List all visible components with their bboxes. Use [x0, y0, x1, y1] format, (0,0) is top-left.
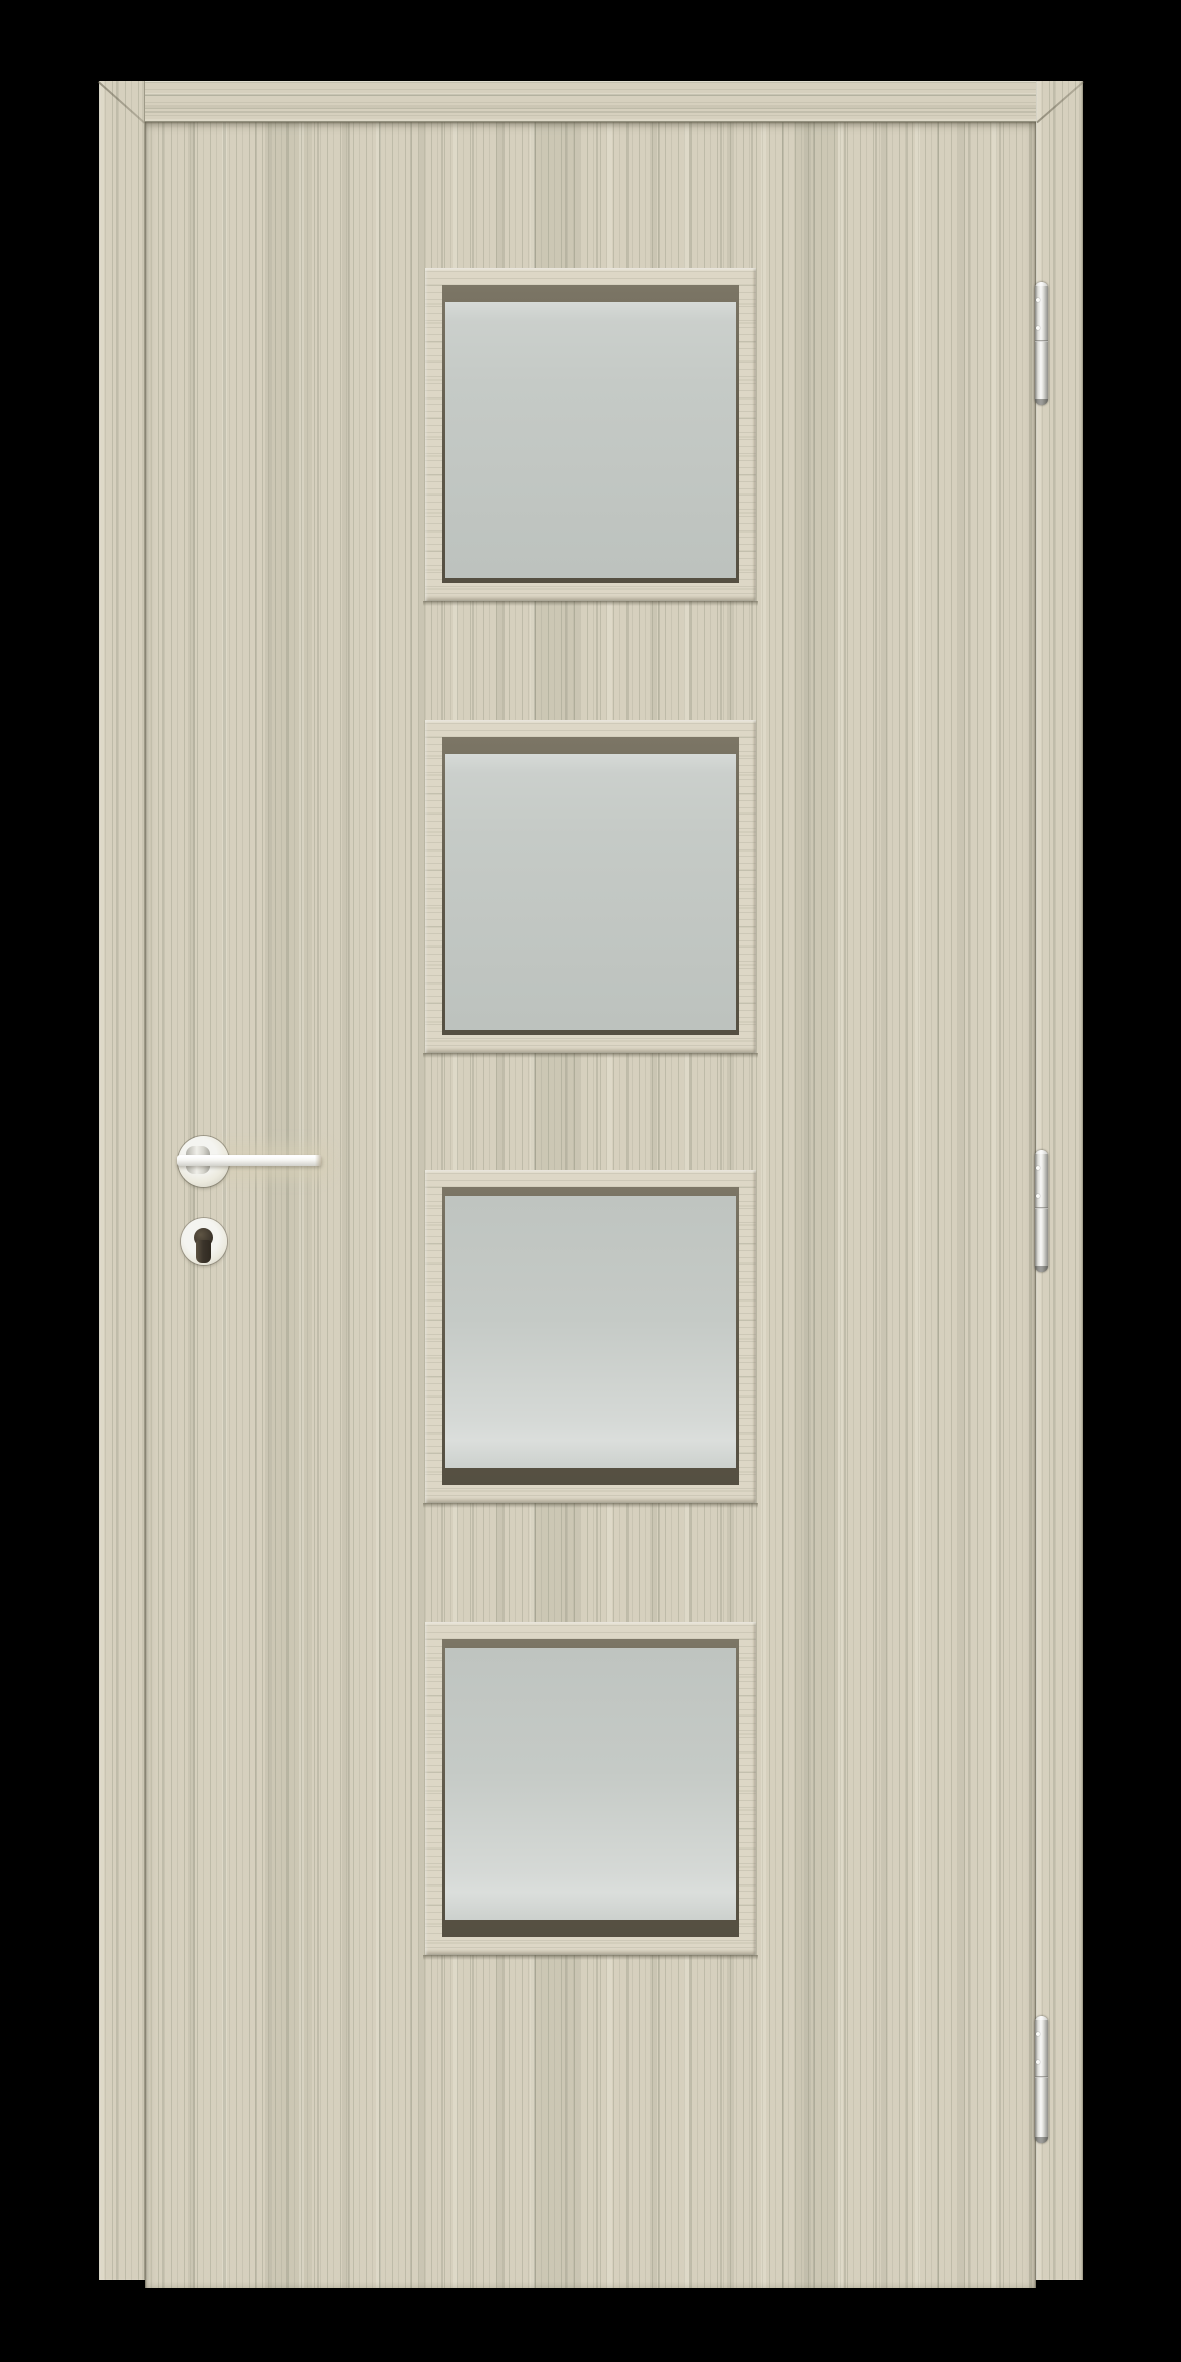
hinge-seam: [1035, 2076, 1048, 2078]
panel-rebate: [442, 1187, 739, 1485]
hinge-pin-icon: [1036, 1166, 1040, 1170]
glass-pane: [445, 754, 736, 1030]
hinge-top: [1035, 282, 1048, 405]
door-leaf: [145, 122, 1036, 2288]
hinge-pin-icon: [1036, 1194, 1040, 1198]
frame-reveal-left: [145, 122, 147, 2288]
door-frame-jamb-left: [99, 81, 145, 2280]
glazing-panel-2: [425, 720, 756, 1053]
hinge-middle: [1035, 1150, 1048, 1272]
door-assembly: [0, 0, 1181, 2362]
glass-pane: [445, 1196, 736, 1468]
glazing-panel-3: [425, 1170, 756, 1503]
hinge-pin-icon: [1036, 2060, 1040, 2064]
lever-handle: [177, 1155, 322, 1166]
keyhole-stem: [196, 1240, 211, 1263]
panel-rebate: [442, 737, 739, 1035]
door-frame-header: [99, 81, 1083, 122]
frame-reveal-top: [145, 122, 1036, 124]
hinge-seam: [1035, 1207, 1048, 1209]
panel-rebate: [442, 1639, 739, 1937]
panel-rebate: [442, 285, 739, 583]
glazing-panel-1: [425, 268, 756, 601]
hinge-pin-icon: [1036, 298, 1040, 302]
photo-background: [0, 0, 1181, 2362]
glazing-panel-4: [425, 1622, 756, 1955]
glass-pane: [445, 1648, 736, 1920]
hinge-pin-icon: [1036, 2032, 1040, 2036]
hinge-seam: [1035, 340, 1048, 342]
glass-pane: [445, 302, 736, 578]
hinge-pin-icon: [1036, 326, 1040, 330]
hinge-bottom: [1035, 2016, 1048, 2143]
